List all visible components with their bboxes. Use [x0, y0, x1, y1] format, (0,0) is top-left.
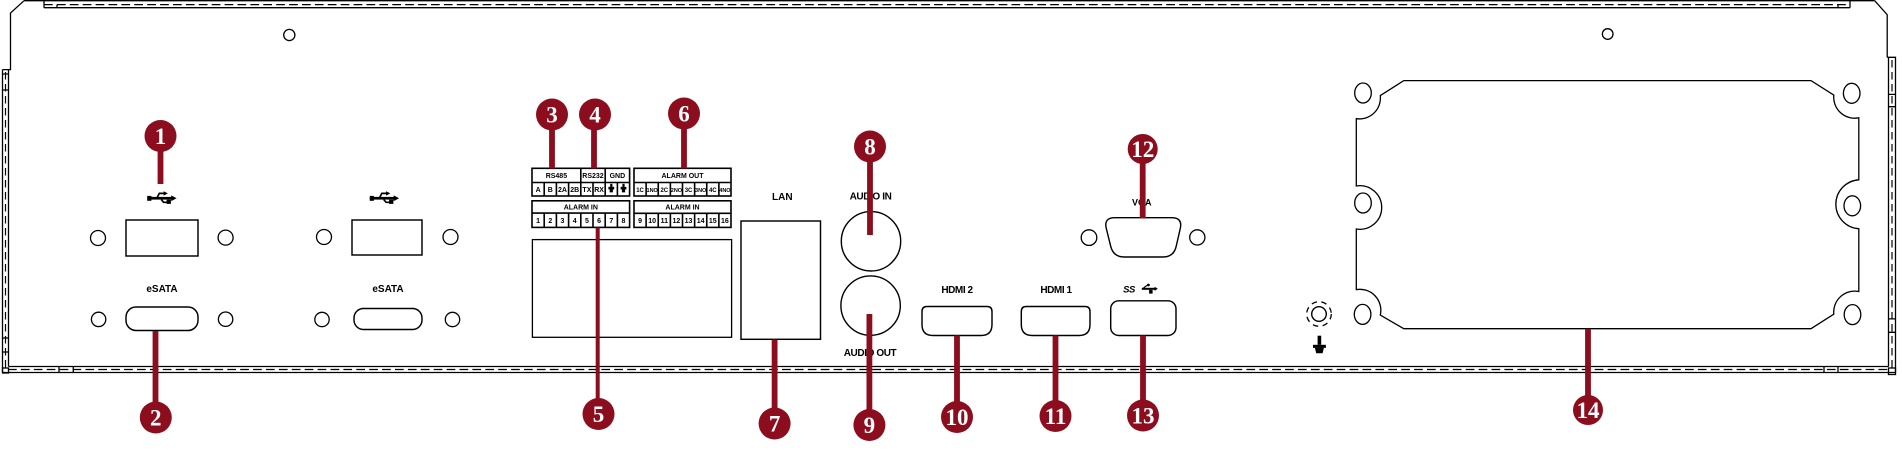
- svg-text:SS: SS: [1123, 285, 1136, 296]
- svg-text:2: 2: [150, 406, 162, 431]
- svg-text:6: 6: [597, 218, 601, 225]
- svg-text:7: 7: [609, 218, 613, 225]
- svg-text:9: 9: [638, 218, 642, 225]
- svg-text:3: 3: [561, 218, 565, 225]
- svg-text:2C: 2C: [660, 188, 668, 194]
- svg-text:12: 12: [673, 218, 681, 225]
- svg-text:1NO: 1NO: [647, 188, 659, 194]
- svg-text:2B: 2B: [570, 187, 579, 194]
- svg-text:HDMI 2: HDMI 2: [941, 285, 973, 296]
- svg-text:4: 4: [573, 218, 577, 225]
- svg-text:16: 16: [721, 218, 729, 225]
- svg-text:eSATA: eSATA: [146, 284, 177, 295]
- svg-text:TX: TX: [582, 187, 591, 194]
- svg-text:12: 12: [1131, 137, 1154, 162]
- svg-text:3C: 3C: [685, 188, 693, 194]
- svg-text:1C: 1C: [636, 188, 644, 194]
- svg-text:RS232: RS232: [582, 173, 604, 180]
- svg-text:RX: RX: [594, 187, 604, 194]
- svg-text:GND: GND: [610, 173, 626, 180]
- svg-text:A: A: [536, 187, 541, 194]
- svg-text:10: 10: [946, 405, 969, 430]
- svg-text:1: 1: [536, 218, 540, 225]
- svg-text:13: 13: [1132, 404, 1155, 429]
- svg-text:2: 2: [548, 218, 552, 225]
- svg-text:8: 8: [864, 135, 876, 160]
- svg-text:9: 9: [864, 413, 876, 438]
- svg-text:4: 4: [589, 103, 601, 128]
- svg-text:11: 11: [1045, 404, 1067, 429]
- svg-text:2A: 2A: [558, 187, 567, 194]
- svg-text:3NO: 3NO: [695, 188, 707, 194]
- svg-text:5: 5: [585, 218, 589, 225]
- svg-text:ALARM IN: ALARM IN: [665, 205, 699, 212]
- svg-text:5: 5: [593, 402, 605, 427]
- svg-text:14: 14: [697, 218, 705, 225]
- svg-text:1: 1: [155, 124, 167, 149]
- svg-text:13: 13: [685, 218, 693, 225]
- svg-text:3: 3: [546, 103, 558, 128]
- svg-text:4C: 4C: [709, 188, 717, 194]
- svg-text:B: B: [548, 187, 553, 194]
- svg-text:14: 14: [1577, 398, 1601, 423]
- svg-text:15: 15: [709, 218, 717, 225]
- svg-text:HDMI 1: HDMI 1: [1040, 285, 1072, 296]
- svg-text:LAN: LAN: [772, 192, 793, 203]
- svg-text:RS485: RS485: [546, 173, 568, 180]
- svg-text:11: 11: [661, 218, 669, 225]
- svg-text:10: 10: [648, 218, 656, 225]
- svg-text:2NO: 2NO: [671, 188, 683, 194]
- svg-text:eSATA: eSATA: [372, 284, 403, 295]
- svg-text:ALARM IN: ALARM IN: [564, 205, 598, 212]
- svg-text:8: 8: [622, 218, 626, 225]
- svg-text:ALARM OUT: ALARM OUT: [662, 173, 705, 180]
- svg-text:7: 7: [769, 412, 781, 437]
- svg-text:4NO: 4NO: [719, 188, 731, 194]
- svg-text:6: 6: [678, 102, 690, 127]
